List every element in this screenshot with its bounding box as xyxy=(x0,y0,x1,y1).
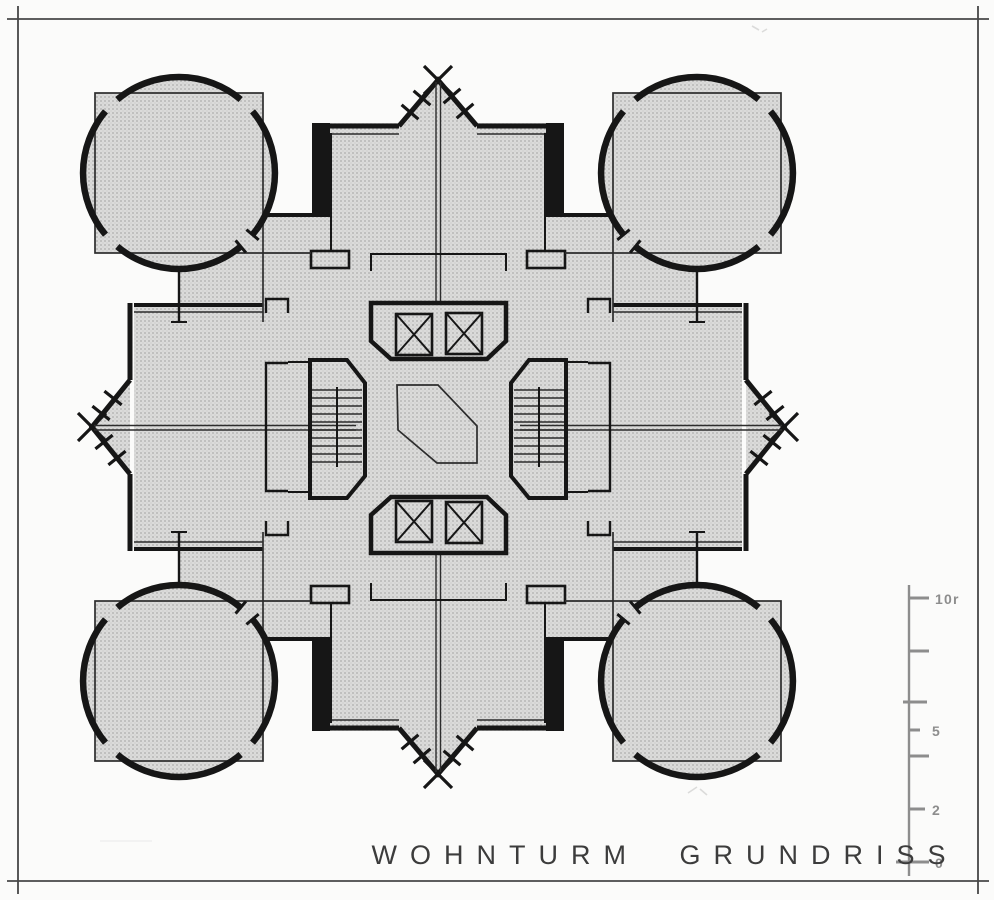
pencil-mark xyxy=(688,787,707,795)
scanned-floor-plan-page: 10r 5 2 0 WOHNTURM GRUNDRISS xyxy=(0,0,994,900)
scale-label-10: 10r xyxy=(935,591,960,607)
plan-fill xyxy=(83,77,793,777)
scale-label-5: 5 xyxy=(932,723,941,739)
south-east-pier xyxy=(546,637,564,731)
scale-bar: 10r 5 2 0 xyxy=(896,585,960,876)
north-west-pier xyxy=(312,123,330,217)
south-west-pier xyxy=(312,637,330,731)
scale-label-2: 2 xyxy=(932,802,941,818)
drawing-title: WOHNTURM GRUNDRISS xyxy=(372,840,959,870)
north-east-pier xyxy=(546,123,564,217)
floor-plan-drawing: 10r 5 2 0 WOHNTURM GRUNDRISS xyxy=(0,0,994,900)
pencil-mark xyxy=(752,26,767,32)
